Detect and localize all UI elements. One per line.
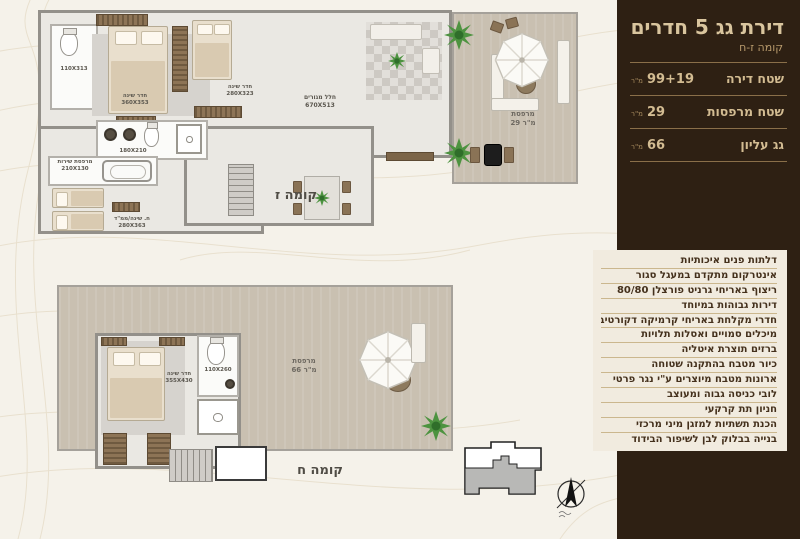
balcony-chair (504, 147, 514, 163)
stat-unit: מ"ר (631, 143, 643, 151)
floor-plan-8: חדר שינה 355X430 110X260 מרפסת 66 מ"ר קו… (55, 283, 457, 488)
feature-item: דלתות פנים איכותיות (601, 254, 777, 269)
feature-item: ריצוף באריחי גרניט פורצלן 80/80 (601, 284, 777, 299)
feature-item: חניון תת קרקעי (601, 403, 777, 418)
room-dims: 670X513 (288, 102, 352, 110)
room-name: חדר שינה (212, 84, 268, 91)
stat-label: גג עליון (740, 137, 784, 152)
room-name: מרפסת (498, 110, 548, 119)
dining-chair (342, 203, 351, 215)
living-label: חלל מגורים 670X513 (288, 94, 352, 109)
feature-item: דירות גבוהות במיוחד (601, 299, 777, 314)
service-label: מרפסת שירות 210X130 (49, 159, 101, 173)
bedroom2-bed (192, 20, 232, 80)
bbq-grill (484, 144, 502, 166)
feature-item: ארונות מטבח מיוצרים ע"י נגר פרטי (601, 373, 777, 388)
balcony-bench (557, 40, 570, 104)
toilet-icon (207, 341, 225, 365)
bedroom2-dresser (194, 106, 242, 118)
dining-chair (293, 203, 302, 215)
wardrobe (103, 433, 127, 465)
room-name: חלל מגורים (288, 94, 352, 102)
stat-value: 99+19 (647, 72, 694, 87)
shower-icon (197, 399, 239, 435)
feature-item: כיור מטבח בהתקנה שטוחה (601, 358, 777, 373)
wardrobe (101, 337, 127, 346)
plant-icon (444, 20, 474, 50)
toilet-icon (144, 126, 159, 147)
feature-item: הכנת תשתיות למזגן מיני מרכזי (601, 418, 777, 433)
bathroom-floor8-label: 110X260 (197, 367, 239, 374)
room-dims: 360X353 (106, 100, 164, 107)
mamad-label: ח. שינה/ממ"ד 280X363 (106, 216, 158, 230)
sink-icon (104, 128, 117, 141)
room-area: 29 מ"ר (498, 119, 548, 128)
sink-icon (225, 379, 235, 389)
balcony-chair (470, 147, 480, 163)
floor8-title: קומה ח (265, 463, 375, 478)
feature-item: בנייה בבלוק לבן לשיפור הבידוד (601, 433, 777, 447)
stat-label: שטח מרפסות (707, 104, 784, 119)
master-label: חדר שינה 360X353 (106, 93, 164, 107)
stat-row: שטח דירה 99+19 מ"ר (630, 62, 787, 95)
room-name: חדר שינה (106, 93, 164, 100)
room-dims: 280X363 (106, 223, 158, 230)
shower-icon (176, 124, 202, 154)
bathroom-mid-label: 180X210 (98, 148, 168, 155)
armchair (422, 48, 440, 74)
stat-value: 66 (647, 138, 665, 153)
sink-icon (123, 128, 136, 141)
floor7-title: קומה ז (241, 188, 351, 203)
compass-icon (552, 474, 590, 522)
mamad-bed-1 (52, 188, 104, 208)
terrace-label: מרפסת 66 מ"ר (277, 357, 331, 375)
mamad-bed-2 (52, 211, 104, 231)
stat-unit: מ"ר (631, 110, 643, 118)
room-dims: 210X130 (49, 166, 101, 173)
room-area: 66 מ"ר (277, 366, 331, 375)
floor-plan-7: 110X313 חדר שינה 360X353 חדר שינה 280X32… (36, 8, 582, 238)
page-subtitle: קומה ז-ח (617, 38, 800, 62)
bathroom-top-label: 110X313 (48, 66, 100, 73)
feature-item: אינטרקום מתקדם במעגל סגור (601, 269, 777, 284)
mamad-dresser (112, 202, 140, 212)
stat-value: 29 (647, 105, 665, 120)
room-name: מרפסת (277, 357, 331, 366)
feature-item: מיכלים סמויים ואסלות תלויות (601, 328, 777, 343)
page-title: דירת גג 5 חדרים (617, 0, 800, 38)
building-key-plan (457, 438, 549, 498)
wardrobe (159, 337, 185, 346)
feature-item: ברזים תוצרת איטליה (601, 343, 777, 358)
stat-row: גג עליון 66 מ"ר (630, 128, 787, 162)
room-dims: 280X323 (212, 91, 268, 98)
stairs-floor8 (169, 449, 213, 482)
room-dims: 110X260 (197, 367, 239, 374)
master-wardrobe (96, 14, 148, 26)
stat-unit: מ"ר (631, 77, 643, 85)
sofa (370, 24, 422, 40)
plant-icon (421, 411, 451, 441)
bedroom2-label: חדר שינה 280X323 (212, 84, 268, 98)
terrace-lounger (411, 323, 426, 363)
umbrella-icon (494, 32, 550, 88)
toilet-icon (60, 32, 78, 56)
stat-row: שטח מרפסות 29 מ"ר (630, 95, 787, 128)
features-list: דלתות פנים איכותיות אינטרקום מתקדם במעגל… (593, 250, 787, 451)
room-name: מרפסת שירות (49, 159, 101, 166)
balcony-label: מרפסת 29 מ"ר (498, 110, 548, 128)
wardrobe (147, 433, 171, 465)
room-dims: 110X313 (48, 66, 100, 73)
plant-icon (388, 52, 406, 70)
umbrella-icon (358, 330, 418, 390)
bathtub-icon (102, 160, 152, 182)
stair-enclosure (215, 446, 267, 481)
room-dims: 355X430 (151, 378, 207, 385)
room-name: ח. שינה/ממ"ד (106, 216, 158, 223)
stat-label: שטח דירה (726, 71, 784, 86)
feature-item: חדרי מקלחת באריחי קרמיקה דקורטיבים (601, 314, 777, 329)
tv-console (386, 152, 434, 161)
bedroom2-wardrobe (172, 26, 188, 92)
room-dims: 180X210 (98, 148, 168, 155)
feature-item: לובי כניסה גבוה ומעוצב (601, 388, 777, 403)
